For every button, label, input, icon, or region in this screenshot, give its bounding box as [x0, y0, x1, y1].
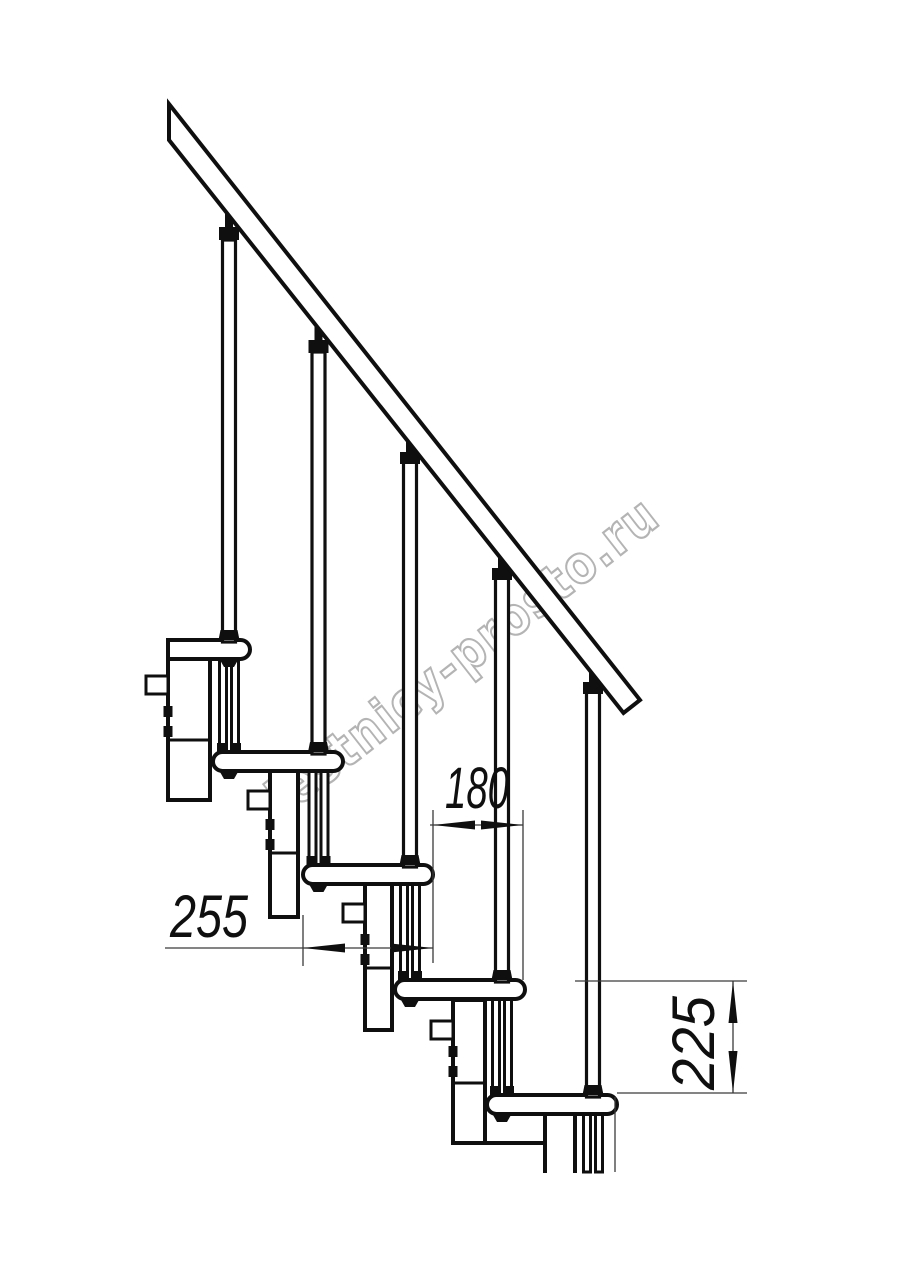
baluster: [587, 692, 600, 1097]
staircase-drawing: lestnicy-prosto.ru: [0, 0, 914, 1280]
tread: [168, 640, 250, 659]
arrowhead-left: [303, 944, 345, 953]
arrowhead-left: [433, 821, 475, 830]
support-column: [453, 1000, 485, 1143]
technical-drawing-canvas: lestnicy-prosto.ru: [0, 0, 914, 1280]
baluster: [404, 462, 417, 867]
dimension-value-180: 180: [445, 756, 509, 821]
baluster: [223, 240, 236, 642]
arrowhead-down: [729, 1051, 738, 1093]
support-column: [168, 657, 210, 800]
staircase-structure: [146, 104, 640, 1173]
dimension-value-255: 255: [169, 883, 248, 950]
baluster: [312, 352, 325, 754]
dimension-value-225: 225: [660, 995, 727, 1091]
arrowhead-up: [729, 981, 738, 1023]
